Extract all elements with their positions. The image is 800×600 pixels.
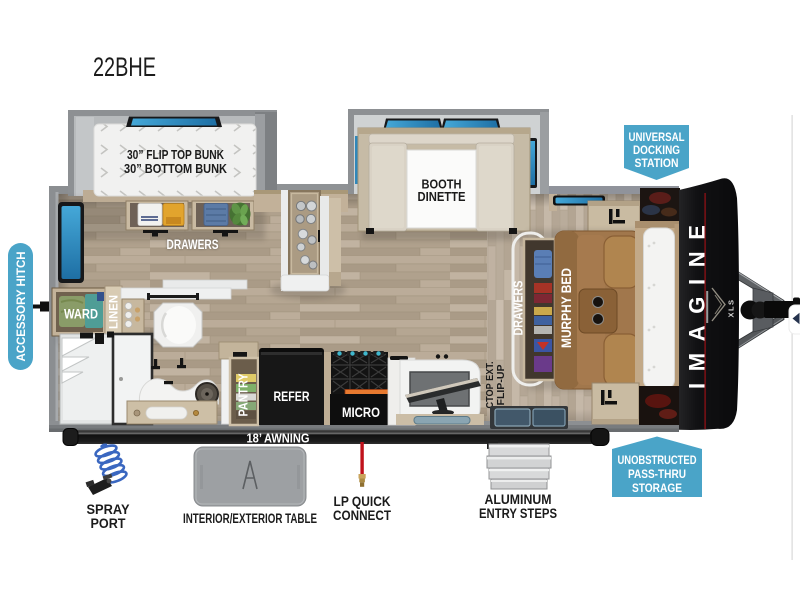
svg-text:CONNECT: CONNECT — [333, 508, 392, 523]
svg-text:18’ AWNING: 18’ AWNING — [247, 431, 310, 446]
svg-text:ACCESSORY HITCH: ACCESSORY HITCH — [14, 252, 28, 362]
svg-text:WARD: WARD — [64, 307, 98, 322]
svg-text:PORT: PORT — [91, 516, 127, 531]
svg-text:22BHE: 22BHE — [93, 52, 156, 82]
svg-text:DRAWERS: DRAWERS — [167, 237, 219, 252]
svg-text:PASS-THRU: PASS-THRU — [628, 469, 686, 481]
svg-text:XLS: XLS — [727, 298, 736, 317]
svg-text:FLIP-UP: FLIP-UP — [496, 364, 507, 405]
svg-text:UNIVERSAL: UNIVERSAL — [629, 132, 685, 144]
svg-text:INTERIOR/EXTERIOR TABLE: INTERIOR/EXTERIOR TABLE — [183, 511, 317, 526]
svg-text:MURPHY BED: MURPHY BED — [559, 268, 574, 348]
svg-text:DRAWERS: DRAWERS — [512, 281, 526, 336]
svg-text:CTOP EXT.: CTOP EXT. — [485, 361, 496, 408]
svg-text:DOCKING: DOCKING — [633, 145, 680, 157]
svg-text:LINEN: LINEN — [109, 295, 121, 329]
svg-text:DINETTE: DINETTE — [418, 189, 466, 204]
svg-text:UNOBSTRUCTED: UNOBSTRUCTED — [618, 455, 697, 467]
svg-text:STATION: STATION — [635, 158, 679, 170]
svg-text:30” FLIP TOP BUNK: 30” FLIP TOP BUNK — [127, 147, 224, 162]
svg-text:PANTRY: PANTRY — [237, 373, 251, 417]
svg-text:ENTRY STEPS: ENTRY STEPS — [479, 506, 557, 521]
svg-text:ALUMINUM: ALUMINUM — [485, 492, 552, 507]
svg-text:STORAGE: STORAGE — [632, 483, 682, 495]
svg-text:MICRO: MICRO — [342, 405, 380, 420]
svg-text:30” BOTTOM BUNK: 30” BOTTOM BUNK — [124, 161, 227, 176]
svg-text:REFER: REFER — [274, 389, 310, 404]
svg-text:LP QUICK: LP QUICK — [334, 494, 391, 509]
svg-text:SPRAY: SPRAY — [87, 502, 130, 517]
